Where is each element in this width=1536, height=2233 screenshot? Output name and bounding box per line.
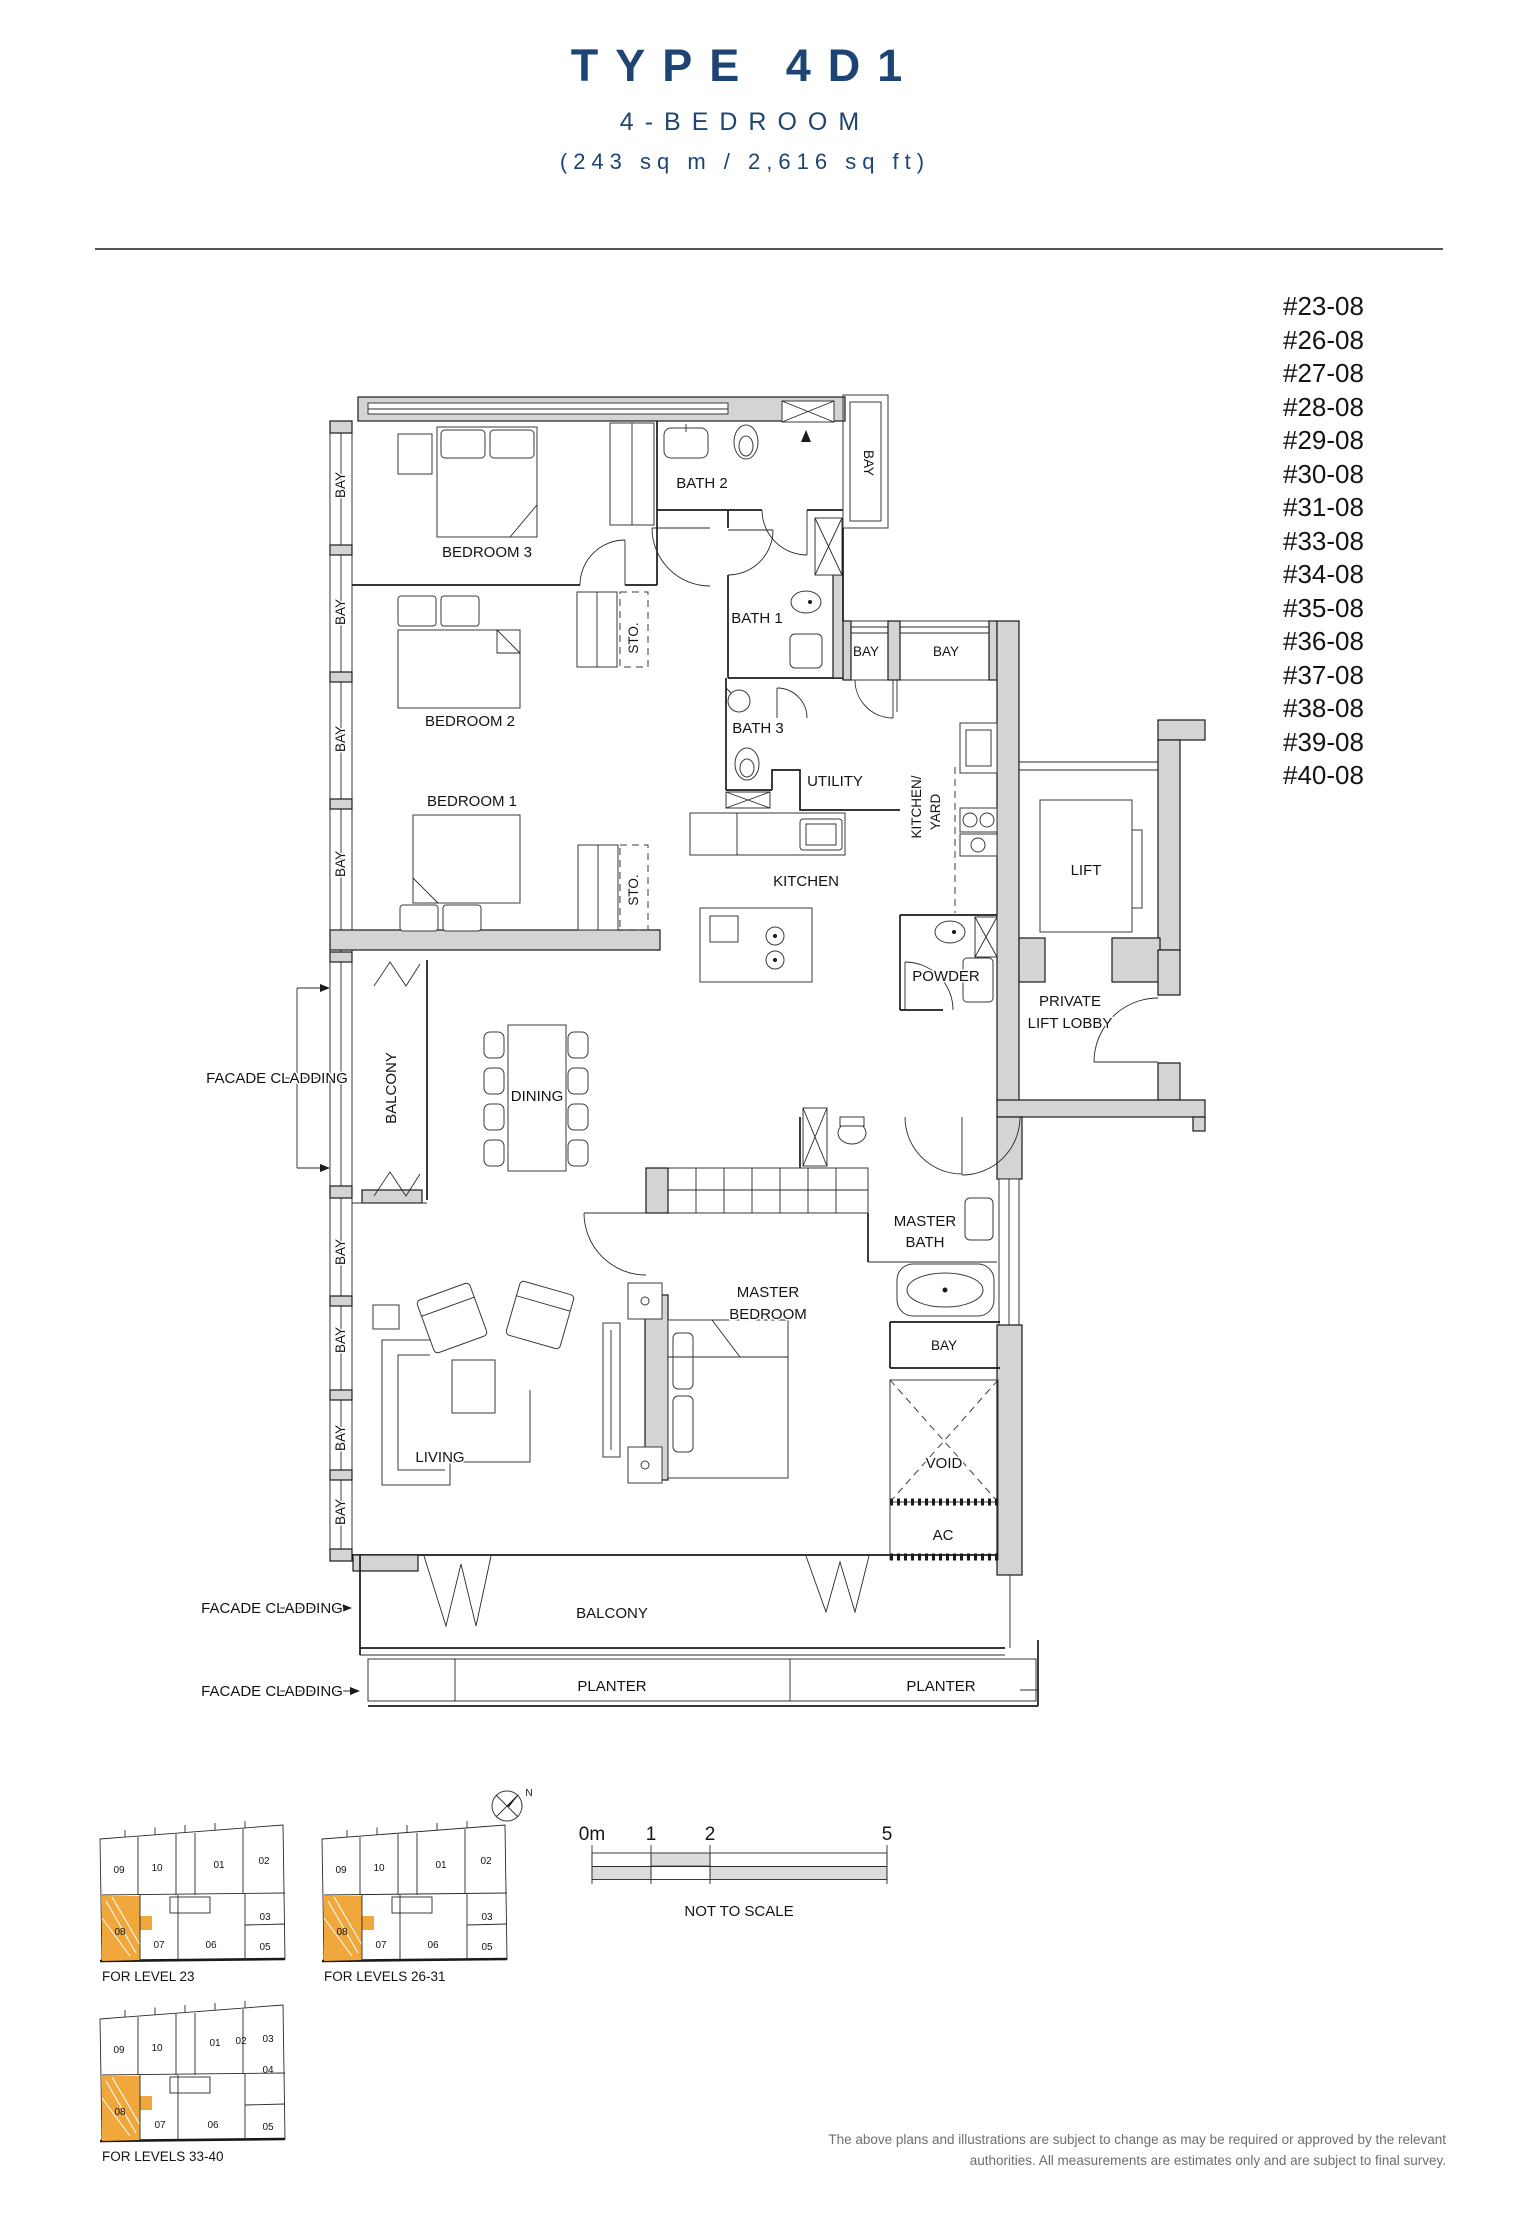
label-bath-1: BATH 1 (731, 610, 782, 627)
key-plan-level-23: 09 10 01 02 03 05 06 07 08 (100, 1821, 285, 1961)
room-labels: BAY BAY BAY BAY BAY BAY BAY BAY BAY BAY … (201, 450, 1112, 1700)
key-plan-unit: 09 (113, 2045, 125, 2056)
key-plan-outline (100, 2001, 285, 2141)
label-lift: LIFT (1071, 862, 1102, 879)
label-planter: PLANTER (577, 1678, 646, 1695)
bath-2-fixtures (664, 424, 758, 459)
key-plan-unit: 03 (262, 2034, 274, 2045)
label-master-bath: MASTER (894, 1213, 957, 1230)
key-plan-caption: FOR LEVELS 26-31 (324, 1969, 446, 1984)
scale-tick: 2 (705, 1824, 716, 1845)
label-facade-cladding: FACADE CLADDING (201, 1600, 343, 1617)
key-plan-unit: 03 (481, 1912, 493, 1923)
label-bath-2: BATH 2 (676, 475, 727, 492)
key-plan-unit: 03 (259, 1912, 271, 1923)
label-bay: BAY (333, 472, 348, 498)
key-plan-caption: FOR LEVELS 33-40 (102, 2149, 224, 2164)
label-sto: STO. (626, 622, 641, 653)
label-private-lift-lobby: LIFT LOBBY (1028, 1015, 1113, 1032)
key-plan-unit: 01 (213, 1860, 225, 1871)
label-planter: PLANTER (906, 1678, 975, 1695)
compass-icon: N (492, 1788, 533, 1821)
disclaimer: The above plans and illustrations are su… (786, 2130, 1446, 2172)
key-plan-unit: 02 (480, 1856, 492, 1867)
key-plan-unit: 02 (235, 2036, 247, 2047)
bath-1-fixtures (790, 591, 822, 668)
key-plan-unit-highlighted: 08 (114, 1927, 126, 1938)
label-bath-3: BATH 3 (732, 720, 783, 737)
key-plan-unit: 02 (258, 1856, 270, 1867)
powder-fixtures (935, 917, 997, 1002)
key-plan-unit: 07 (375, 1940, 387, 1951)
key-plan-unit: 10 (373, 1863, 385, 1874)
label-living: LIVING (415, 1449, 464, 1466)
key-plan-levels-33-40: 09 10 01 02 03 04 05 06 07 08 (100, 2001, 285, 2141)
key-plan-unit: 07 (154, 2120, 166, 2131)
key-plan-outline (322, 1821, 507, 1961)
compass-north-label: N (525, 1788, 532, 1799)
label-bedroom-1: BEDROOM 1 (427, 793, 517, 810)
right-column-walls (843, 621, 1205, 1575)
label-balcony-side: BALCONY (383, 1052, 400, 1124)
key-plan-unit: 10 (151, 2043, 163, 2054)
label-master-bath: BATH (906, 1234, 945, 1251)
label-void: VOID (926, 1455, 963, 1472)
key-plan-unit: 01 (435, 1860, 447, 1871)
label-bay: BAY (333, 1327, 348, 1353)
label-facade-cladding: FACADE CLADDING (201, 1683, 343, 1700)
label-bay: BAY (333, 851, 348, 877)
label-master-bedroom: MASTER (737, 1284, 800, 1301)
label-utility: UTILITY (807, 773, 863, 790)
key-plan-unit: 07 (153, 1940, 165, 1951)
key-plan-unit-highlighted: 08 (336, 1927, 348, 1938)
bedroom-2-furniture (398, 592, 648, 708)
living-furniture (373, 1280, 620, 1485)
label-bay: BAY (333, 726, 348, 752)
bedroom-3-furniture (398, 423, 654, 537)
key-plan-caption: FOR LEVEL 23 (102, 1969, 195, 1984)
label-kitchen-yard: YARD (928, 794, 943, 831)
key-plan-unit: 05 (262, 2122, 274, 2133)
scale-note: NOT TO SCALE (684, 1903, 793, 1920)
label-dining: DINING (511, 1088, 564, 1105)
label-bedroom-2: BEDROOM 2 (425, 713, 515, 730)
label-bay: BAY (861, 450, 876, 476)
key-plan-unit: 06 (205, 1940, 217, 1951)
key-plan-unit: 06 (207, 2120, 219, 2131)
scale-tick: 5 (882, 1824, 893, 1845)
label-bay: BAY (333, 1499, 348, 1525)
exterior-walls (330, 395, 1038, 1706)
key-plan-unit: 09 (113, 1865, 125, 1876)
key-plan-unit: 06 (427, 1940, 439, 1951)
label-master-bedroom: BEDROOM (729, 1306, 807, 1323)
label-ac: AC (933, 1527, 954, 1544)
key-plan-unit: 04 (262, 2065, 274, 2076)
label-sto: STO. (626, 874, 641, 905)
key-plan-unit: 10 (151, 1863, 163, 1874)
label-bay: BAY (333, 1425, 348, 1451)
label-bay: BAY (931, 1338, 957, 1353)
label-bay: BAY (333, 1239, 348, 1265)
key-plan-unit: 09 (335, 1865, 347, 1876)
key-plan-outline (100, 1821, 285, 1961)
key-plan-unit: 01 (209, 2038, 221, 2049)
floor-plan: BAY BAY BAY BAY BAY BAY BAY BAY BAY BAY … (0, 0, 1536, 2233)
label-bay: BAY (853, 644, 879, 659)
key-plan-unit-highlighted: 08 (114, 2107, 126, 2118)
master-bedroom-furniture (628, 1168, 868, 1483)
key-plan-levels-26-31: 09 10 01 02 03 05 06 07 08 (322, 1821, 507, 1961)
bedroom-1-furniture (400, 815, 648, 931)
label-kitchen: KITCHEN (773, 873, 839, 890)
scale-tick: 1 (646, 1824, 657, 1845)
scale-tick: 0m (579, 1824, 605, 1845)
label-bedroom-3: BEDROOM 3 (442, 544, 532, 561)
key-plan-unit: 05 (481, 1942, 493, 1953)
label-powder: POWDER (912, 968, 980, 985)
label-balcony-bottom: BALCONY (576, 1605, 648, 1622)
label-kitchen-yard: KITCHEN/ (909, 775, 924, 838)
label-bay: BAY (933, 644, 959, 659)
scale-bar: 0m 1 2 5 NOT TO SCALE (579, 1824, 892, 1920)
label-bay: BAY (333, 599, 348, 625)
label-facade-cladding: FACADE CLADDING (206, 1070, 348, 1087)
label-private-lift-lobby: PRIVATE (1039, 993, 1101, 1010)
key-plan-unit: 05 (259, 1942, 271, 1953)
